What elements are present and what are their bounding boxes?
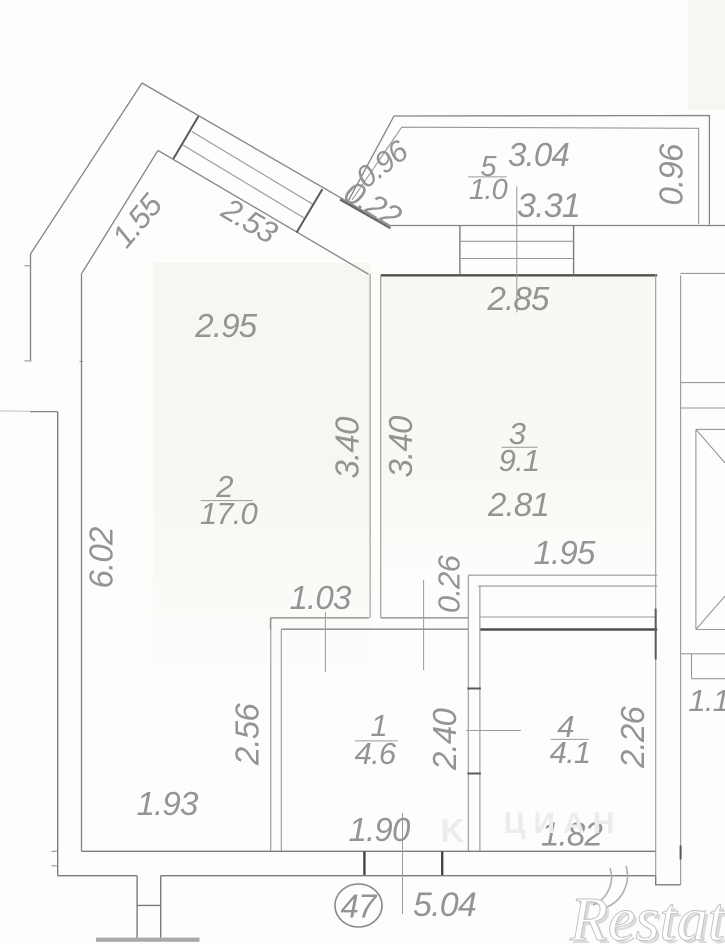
svg-text:17.0: 17.0 xyxy=(200,496,258,531)
svg-text:4.1: 4.1 xyxy=(550,735,591,770)
svg-text:5.04: 5.04 xyxy=(413,886,476,924)
svg-text:Restate: Restate xyxy=(569,886,725,944)
svg-text:2.40: 2.40 xyxy=(426,708,463,771)
svg-text:1.03: 1.03 xyxy=(289,579,351,616)
svg-text:9.1: 9.1 xyxy=(499,443,540,478)
svg-text:4.6: 4.6 xyxy=(355,736,397,771)
svg-text:1.0: 1.0 xyxy=(469,174,508,206)
svg-text:0.96: 0.96 xyxy=(653,143,690,205)
svg-text:3.40: 3.40 xyxy=(382,415,419,477)
svg-text:2.85: 2.85 xyxy=(486,280,549,317)
svg-text:2.56: 2.56 xyxy=(228,703,265,766)
svg-text:1.90: 1.90 xyxy=(348,811,410,848)
svg-text:1.15: 1.15 xyxy=(688,683,725,718)
svg-text:3.40: 3.40 xyxy=(329,416,366,478)
svg-text:3.04: 3.04 xyxy=(508,136,569,173)
svg-text:1.95: 1.95 xyxy=(533,534,595,571)
svg-text:1.93: 1.93 xyxy=(136,785,198,822)
svg-text:47: 47 xyxy=(340,888,378,925)
svg-text:2.26: 2.26 xyxy=(614,706,651,769)
svg-text:3.31: 3.31 xyxy=(517,187,580,225)
svg-text:6.02: 6.02 xyxy=(83,527,120,588)
svg-text:K: K xyxy=(440,812,464,849)
svg-text:0.26: 0.26 xyxy=(432,554,467,613)
svg-text:2.95: 2.95 xyxy=(194,307,257,344)
svg-text:ЦИАН: ЦИАН xyxy=(504,807,623,840)
svg-text:2.81: 2.81 xyxy=(487,486,549,523)
